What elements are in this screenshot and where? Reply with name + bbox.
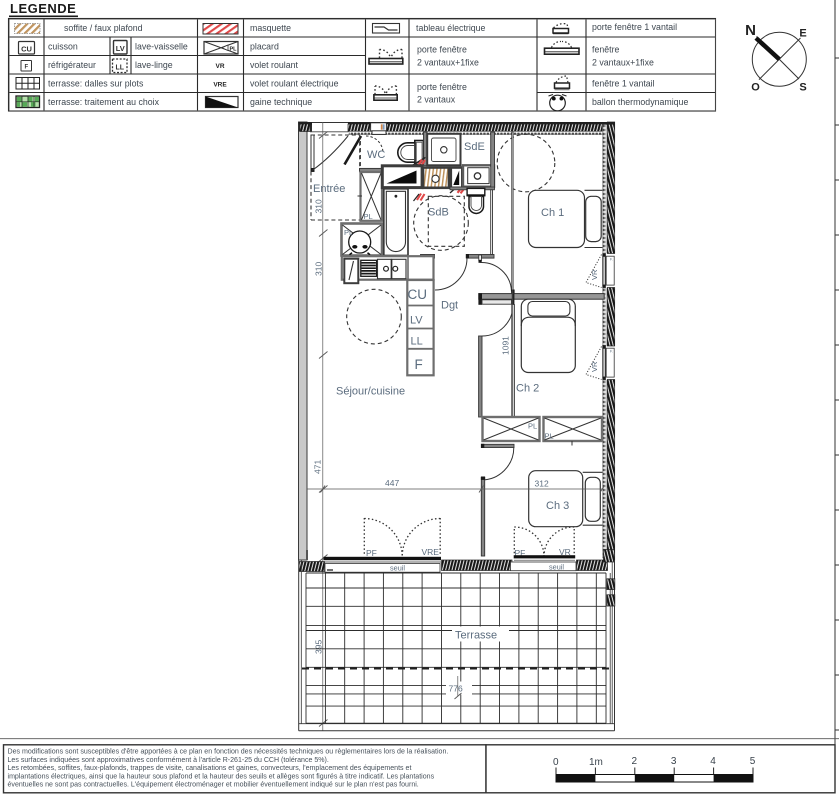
svg-text:Ch 2: Ch 2 [516,383,539,395]
svg-text:2 vantaux: 2 vantaux [417,95,456,105]
svg-text:soffite / faux plafond: soffite / faux plafond [64,23,143,33]
svg-text:lave-linge: lave-linge [135,60,173,70]
svg-text:0: 0 [553,757,559,768]
svg-text:CU: CU [408,287,428,302]
svg-text:E: E [799,28,806,40]
svg-text:CU: CU [21,45,32,54]
svg-text:PF: PF [366,548,377,558]
svg-text:395: 395 [314,640,324,654]
svg-text:310: 310 [314,199,324,213]
svg-text:Entrée: Entrée [313,183,345,195]
svg-text:gaine technique: gaine technique [250,97,312,107]
svg-text:fenêtre 1 vantail: fenêtre 1 vantail [592,79,655,89]
svg-text:tableau électrique: tableau électrique [416,23,486,33]
svg-text:2 vantaux+1fixe: 2 vantaux+1fixe [417,58,479,68]
svg-text:3: 3 [671,756,677,767]
svg-text:implantations électriques, ain: implantations électriques, ainsi que la … [8,773,435,780]
svg-text:PL: PL [364,212,373,221]
svg-text:Dgt: Dgt [441,300,458,312]
svg-text:Des modifications sont suscept: Des modifications sont susceptibles d'êt… [8,749,449,756]
svg-text:placard: placard [250,42,279,52]
svg-text:F: F [24,65,28,71]
svg-text:masquette: masquette [250,23,291,33]
svg-text:Ch 3: Ch 3 [546,500,569,512]
svg-text:volet roulant électrique: volet roulant électrique [250,79,339,89]
svg-text:312: 312 [535,479,549,489]
svg-text:310: 310 [314,262,324,276]
svg-text:776: 776 [449,684,463,694]
svg-text:LV: LV [116,44,125,53]
svg-text:Les surfaces indiquées sont ap: Les surfaces indiquées sont approximativ… [8,757,329,764]
svg-text:seuil: seuil [390,564,405,573]
svg-text:PL: PL [545,432,554,441]
svg-text:VRE: VRE [213,82,227,89]
svg-text:N: N [745,22,756,39]
svg-text:5: 5 [750,756,756,767]
svg-text:WC: WC [367,149,385,161]
svg-text:F.: F. [610,350,613,354]
svg-text:LV: LV [410,315,423,327]
svg-text:terrasse: traitement au choix: terrasse: traitement au choix [48,97,160,107]
svg-text:O: O [751,82,760,94]
svg-text:LL: LL [411,336,423,348]
svg-text:SdB: SdB [428,207,449,219]
svg-text:Séjour/cuisine: Séjour/cuisine [336,386,405,398]
svg-text:PL: PL [344,228,353,237]
svg-text:4: 4 [710,756,716,767]
svg-text:Les retombées, soffites, faux-: Les retombées, soffites, faux-plafonds, … [8,765,412,772]
svg-text:LEGENDE: LEGENDE [10,1,76,16]
svg-text:fenêtre: fenêtre [592,45,619,55]
svg-text:Ch 1: Ch 1 [541,207,564,219]
svg-text:S: S [799,82,806,94]
svg-text:1m: 1m [589,757,603,768]
svg-text:porte fenêtre: porte fenêtre [417,82,467,92]
svg-text:2: 2 [632,756,638,767]
svg-text:PL: PL [528,422,537,431]
svg-text:2 vantaux+1fixe: 2 vantaux+1fixe [592,58,654,68]
svg-text:F.: F. [610,258,613,262]
svg-text:porte fenêtre: porte fenêtre [417,45,467,55]
svg-text:F: F [415,357,423,372]
svg-text:volet roulant: volet roulant [250,60,298,70]
svg-text:VRE: VRE [422,547,440,557]
svg-text:PL: PL [229,47,237,53]
svg-text:VR: VR [590,361,599,372]
svg-text:LL: LL [116,64,125,71]
svg-text:seuil: seuil [549,563,564,572]
svg-text:éventuelles ne sont pas contra: éventuelles ne sont pas contractuelles. … [8,782,419,789]
svg-text:447: 447 [385,478,399,488]
svg-text:1091: 1091 [501,336,511,355]
svg-text:cuisson: cuisson [48,42,78,52]
svg-text:ballon thermodynamique: ballon thermodynamique [592,97,688,107]
svg-text:lave-vaisselle: lave-vaisselle [135,42,188,52]
svg-text:réfrigérateur: réfrigérateur [48,60,96,70]
svg-text:471: 471 [313,460,323,474]
svg-text:SdE: SdE [464,141,485,153]
svg-text:porte fenêtre 1 vantail: porte fenêtre 1 vantail [592,22,677,32]
svg-text:terrasse: dalles sur plots: terrasse: dalles sur plots [48,79,144,89]
svg-text:VR: VR [215,63,224,70]
svg-text:VR: VR [590,269,599,280]
svg-text:Terrasse: Terrasse [455,630,497,642]
